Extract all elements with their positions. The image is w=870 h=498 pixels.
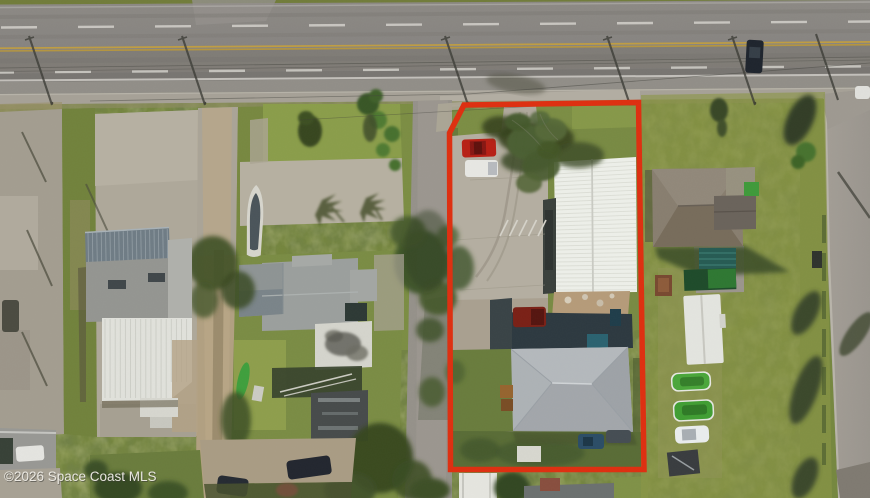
svg-text:©2026 Space Coast MLS: ©2026 Space Coast MLS [4,469,157,484]
